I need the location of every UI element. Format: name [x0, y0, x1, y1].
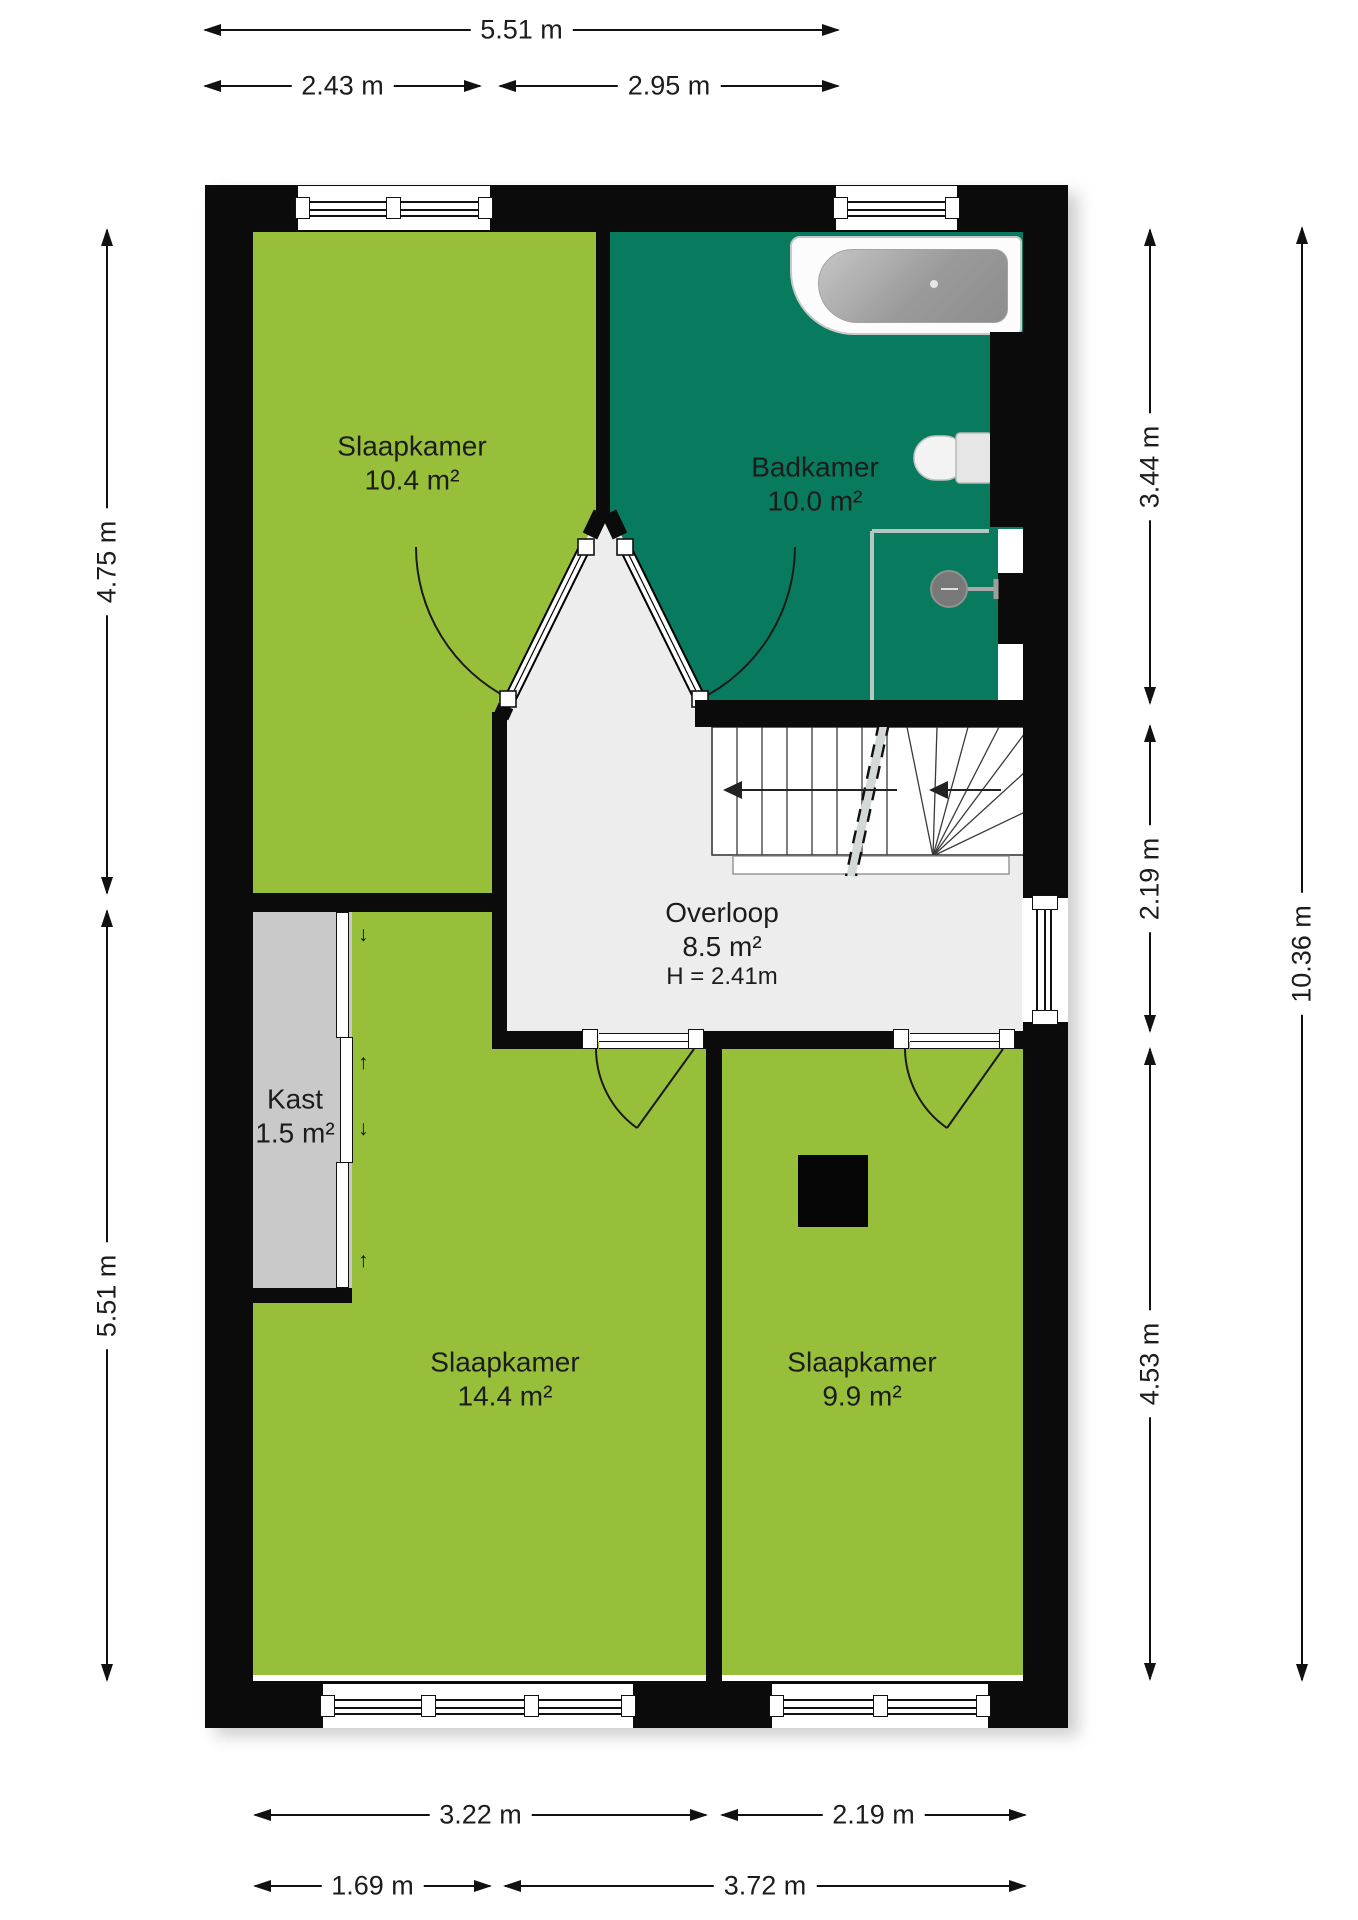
window-slaapkamer-9-9 — [772, 1684, 988, 1728]
room-area: 9.9 m² — [787, 1379, 936, 1413]
wall-bed1-bottom — [253, 893, 507, 912]
dimension-value: 5.51 m — [92, 1242, 123, 1349]
sliding-panel — [336, 912, 349, 1038]
window-frame — [421, 1695, 436, 1717]
door-hinge — [688, 1029, 704, 1049]
window-frame — [295, 197, 310, 219]
label-badkamer: Badkamer 10.0 m² — [751, 450, 879, 517]
bathtub-drain — [930, 280, 938, 288]
window-frame — [320, 1695, 335, 1717]
door-hinge — [582, 1029, 598, 1049]
room-name: Slaapkamer — [337, 429, 486, 463]
floor-plan-canvas: ↓ ↑ ↓ ↑ Slaapkamer 10.4 m² — [0, 0, 1358, 1920]
dimension-value: 2.19 m — [1135, 825, 1166, 932]
door-hinge — [617, 539, 633, 555]
dimension-value: 3.72 m — [714, 1871, 817, 1902]
wall-overloop-bottom-b — [695, 1031, 900, 1049]
window-badkamer — [836, 186, 957, 230]
dimension-value: 3.44 m — [1135, 413, 1166, 520]
window-frame — [873, 1695, 888, 1717]
label-slaapkamer-10-4: Slaapkamer 10.4 m² — [337, 429, 486, 496]
room-area: 14.4 m² — [430, 1379, 579, 1413]
door-hinge — [999, 1029, 1015, 1049]
door-threshold-slaapkamer-14-4 — [599, 1033, 688, 1049]
staircase — [712, 723, 1025, 876]
label-kast: Kast 1.5 m² — [255, 1082, 334, 1149]
label-slaapkamer-9-9: Slaapkamer 9.9 m² — [787, 1345, 936, 1412]
wall-bed-bath-divider — [596, 230, 610, 522]
wall-exterior-left — [205, 185, 253, 1728]
window-frame — [833, 197, 848, 219]
window-glass — [323, 1699, 633, 1715]
window-glass — [836, 201, 957, 217]
window-frame — [478, 197, 493, 219]
dimension-value: 1.69 m — [321, 1871, 424, 1902]
slide-direction-arrow-down-icon: ↓ — [358, 924, 369, 945]
dimension-value: 2.43 m — [291, 71, 394, 102]
wall-stub — [998, 573, 1025, 644]
window-slaapkamer-14-4 — [323, 1684, 633, 1728]
wall-bedroom-divider — [706, 1042, 722, 1683]
wall-bathroom-jog — [990, 332, 1025, 527]
door-threshold-slaapkamer-9-9 — [910, 1033, 999, 1049]
room-name: Slaapkamer — [787, 1345, 936, 1379]
room-name: Slaapkamer — [430, 1345, 579, 1379]
label-slaapkamer-14-4: Slaapkamer 14.4 m² — [430, 1345, 579, 1412]
window-frame — [1032, 1010, 1058, 1025]
sliding-panel — [336, 1162, 349, 1288]
window-frame — [524, 1695, 539, 1717]
sliding-panel — [340, 1037, 353, 1163]
dimension-value: 4.53 m — [1135, 1311, 1166, 1418]
window-slaapkamer-10-4 — [298, 186, 490, 230]
room-name: Overloop — [665, 896, 779, 930]
window-frame — [386, 197, 401, 219]
stair-landing-edge — [733, 856, 1009, 874]
chimney-shaft — [798, 1155, 868, 1227]
dimension-value: 10.36 m — [1287, 893, 1318, 1015]
wall-overloop-bottom-a — [492, 1031, 590, 1049]
slide-direction-arrow-down-icon: ↓ — [358, 1118, 369, 1139]
room-area: 10.4 m² — [337, 463, 486, 497]
room-area: 1.5 m² — [255, 1116, 334, 1150]
door-hinge — [500, 691, 516, 707]
dimension-value: 3.22 m — [429, 1800, 532, 1831]
dimension-value: 5.51 m — [470, 15, 573, 46]
wall-kast-bottom — [253, 1288, 352, 1303]
slide-direction-arrow-up-icon: ↑ — [358, 1250, 369, 1271]
wall-badkamer-bottom — [695, 700, 1025, 727]
bathtub — [790, 236, 1022, 335]
dimension-value: 2.95 m — [618, 71, 721, 102]
toilet — [914, 433, 992, 483]
dimension-value: 4.75 m — [92, 508, 123, 615]
door-hinge — [578, 539, 594, 555]
window-frame — [945, 197, 960, 219]
window-frame — [976, 1695, 991, 1717]
kast-sliding-doors — [336, 912, 353, 1288]
wall-niche-upper — [998, 529, 1025, 573]
wall-niche-lower — [998, 644, 1025, 702]
window-overloop — [1022, 898, 1068, 1022]
room-name: Kast — [255, 1082, 334, 1116]
label-overloop: Overloop 8.5 m² H = 2.41m — [665, 896, 779, 992]
window-frame — [621, 1695, 636, 1717]
room-area: 10.0 m² — [751, 484, 879, 518]
dimension-value: 2.19 m — [822, 1800, 925, 1831]
slide-direction-arrow-up-icon: ↑ — [358, 1052, 369, 1073]
window-frame — [1032, 895, 1058, 910]
room-area: 8.5 m² — [665, 930, 779, 964]
door-hinge — [893, 1029, 909, 1049]
room-name: Badkamer — [751, 450, 879, 484]
window-glass — [1036, 898, 1052, 1022]
window-frame — [769, 1695, 784, 1717]
wall-overloop-left — [492, 712, 507, 1042]
bathtub-basin — [818, 249, 1008, 323]
room-ceiling-height: H = 2.41m — [665, 963, 779, 992]
